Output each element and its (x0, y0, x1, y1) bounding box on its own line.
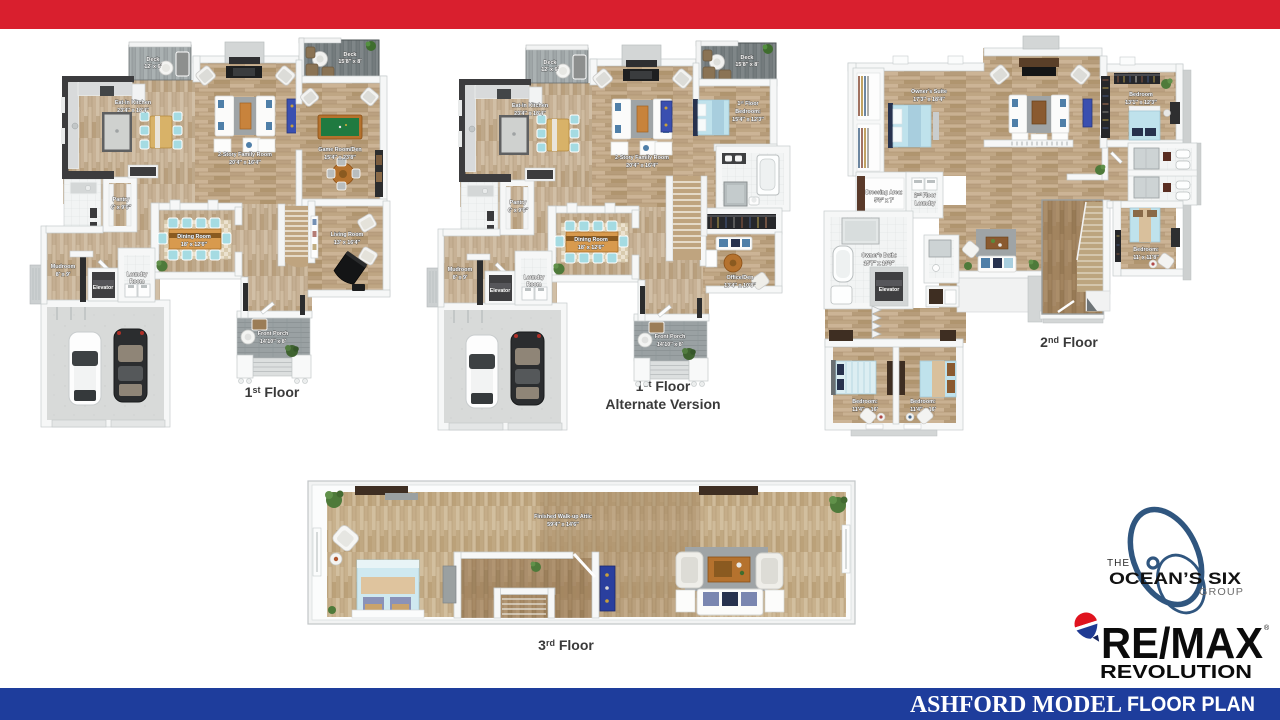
svg-text:Deck: Deck (344, 52, 357, 58)
svg-text:3rd Floor: 3rd Floor (538, 637, 594, 653)
svg-text:ASHFORD MODEL: ASHFORD MODEL (910, 692, 1122, 718)
svg-text:®: ® (1264, 624, 1270, 632)
svg-text:THE: THE (1107, 558, 1130, 569)
svg-text:OCEAN’S SIX: OCEAN’S SIX (1109, 569, 1242, 588)
svg-text:Elevator: Elevator (879, 287, 899, 293)
svg-text:Living Room: Living Room (331, 232, 364, 238)
svg-text:Office/Den: Office/Den (727, 275, 754, 281)
svg-text:RE/MAX: RE/MAX (1101, 619, 1263, 668)
svg-text:14′10″ x 8′: 14′10″ x 8′ (260, 339, 287, 345)
svg-text:Dining Room: Dining Room (177, 234, 211, 240)
svg-text:Laundry: Laundry (915, 201, 936, 207)
svg-text:23′4″ x 18′4″: 23′4″ x 18′4″ (117, 108, 149, 114)
svg-text:Room: Room (130, 279, 145, 285)
svg-text:Dressing Area:: Dressing Area: (866, 190, 903, 196)
svg-text:13′ x 16′4″: 13′ x 16′4″ (334, 240, 361, 246)
svg-text:15′8″ x 8′: 15′8″ x 8′ (338, 59, 362, 65)
svg-text:Deck: Deck (147, 57, 160, 63)
svg-text:2nd Floor: 2nd Floor (1040, 334, 1098, 350)
svg-text:1st Floor: 1st Floor (245, 384, 300, 400)
svg-text:Elevator: Elevator (93, 285, 113, 291)
svg-text:Finished Walk-up Attic: Finished Walk-up Attic (534, 514, 592, 520)
svg-text:GROUP: GROUP (1199, 587, 1244, 598)
svg-text:Bedroom:: Bedroom: (735, 109, 761, 115)
svg-text:Owner’s Suite: Owner’s Suite (911, 89, 947, 95)
svg-text:12′ x 6′: 12′ x 6′ (144, 64, 162, 70)
svg-text:15′4″ x 12′3″: 15′4″ x 12′3″ (732, 117, 764, 123)
svg-text:REVOLUTION: REVOLUTION (1100, 662, 1252, 682)
svg-text:Game Room/Den: Game Room/Den (318, 147, 361, 153)
svg-text:Mudroom: Mudroom (51, 264, 76, 270)
svg-text:Owner’s Bath:: Owner’s Bath: (861, 253, 896, 259)
svg-text:Eat-in Kitchen: Eat-in Kitchen (115, 100, 151, 106)
svg-text:Laundry: Laundry (127, 272, 148, 278)
svg-text:Bedroom:: Bedroom: (852, 399, 878, 405)
svg-text:Bedroom: Bedroom (1129, 92, 1153, 98)
svg-text:Bedroom:: Bedroom: (1133, 247, 1159, 253)
svg-text:15′7″ x 13′3″: 15′7″ x 13′3″ (864, 261, 895, 267)
svg-text:11′ x 11′8″: 11′ x 11′8″ (1133, 255, 1159, 261)
svg-text:59′4″ x 14′6″: 59′4″ x 14′6″ (547, 522, 579, 528)
svg-text:5′6″ x 7′: 5′6″ x 7′ (874, 198, 894, 204)
svg-text:8′ x 9′: 8′ x 9′ (56, 272, 71, 278)
svg-text:18′ x 12′6″: 18′ x 12′6″ (181, 242, 208, 248)
svg-text:13′1″ x 12′3″: 13′1″ x 12′3″ (1125, 100, 1157, 106)
svg-text:FLOOR PLAN: FLOOR PLAN (1127, 693, 1255, 716)
svg-text:20′4″ x 16′4″: 20′4″ x 16′4″ (229, 160, 261, 166)
svg-text:Bedroom:: Bedroom: (910, 399, 936, 405)
svg-text:15′4″ x 23′8″: 15′4″ x 23′8″ (324, 155, 356, 161)
svg-text:2-Story Family Room: 2-Story Family Room (218, 152, 272, 158)
svg-text:6′ x 9′6″: 6′ x 9′6″ (111, 205, 132, 211)
svg-text:13′4″ x 10′8″: 13′4″ x 10′8″ (724, 283, 756, 289)
svg-text:Front Porch: Front Porch (258, 331, 289, 337)
svg-text:17′3″ x 18′4″: 17′3″ x 18′4″ (913, 97, 945, 103)
svg-text:Pantry: Pantry (113, 197, 130, 203)
svg-text:Alternate Version: Alternate Version (605, 396, 720, 412)
